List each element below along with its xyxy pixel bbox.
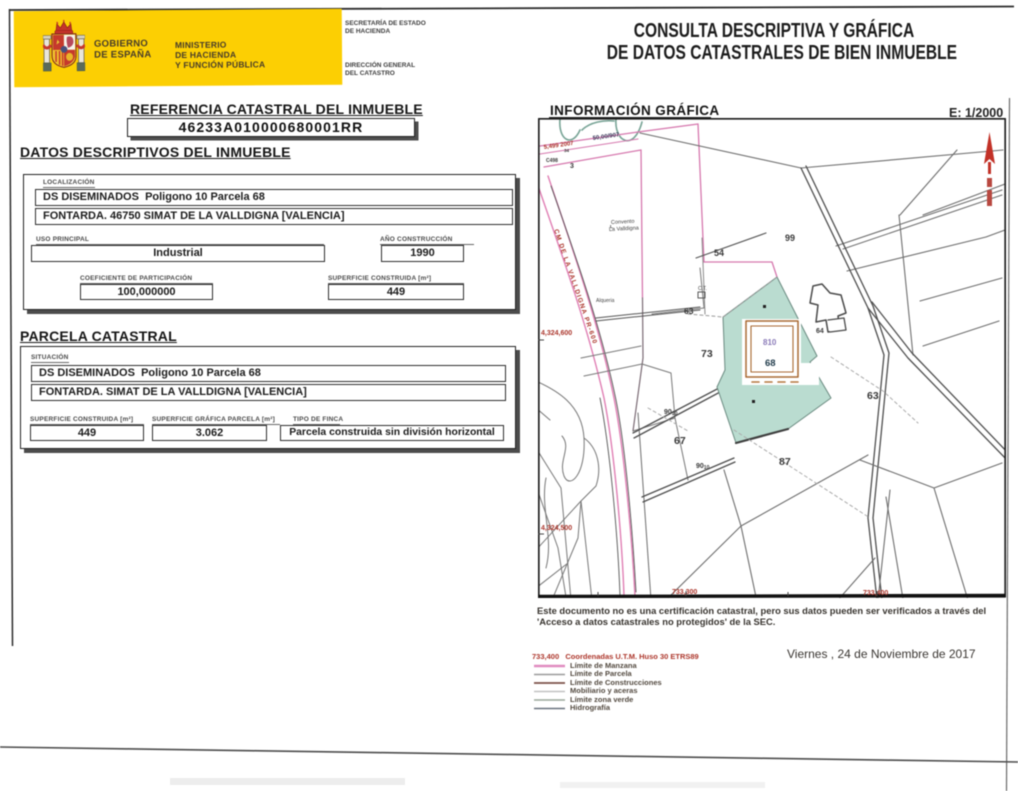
svg-text:9010: 9010	[696, 463, 710, 471]
svg-text:3: 3	[570, 163, 574, 170]
svg-text:64: 64	[816, 328, 824, 335]
svg-text:54: 54	[714, 248, 724, 258]
svg-text:63: 63	[867, 390, 879, 402]
svg-text:4,324,600: 4,324,600	[541, 330, 572, 337]
svg-text:67: 67	[674, 435, 686, 447]
svg-text:810: 810	[763, 338, 777, 347]
svg-text:73: 73	[701, 348, 713, 360]
svg-text:C.T.: C.T.	[698, 286, 707, 292]
svg-text:C498: C498	[546, 158, 558, 164]
svg-text:4,324,500: 4,324,500	[541, 525, 572, 532]
svg-text:99: 99	[785, 233, 795, 243]
svg-text:9010: 9010	[664, 409, 678, 417]
svg-text:733,400: 733,400	[863, 590, 888, 597]
svg-text:63: 63	[684, 306, 694, 316]
svg-text:Alqueria: Alqueria	[596, 298, 615, 304]
svg-text:733,300: 733,300	[672, 589, 697, 596]
svg-text:34: 34	[564, 148, 570, 153]
svg-text:68: 68	[765, 358, 776, 369]
svg-text:87: 87	[779, 456, 791, 468]
